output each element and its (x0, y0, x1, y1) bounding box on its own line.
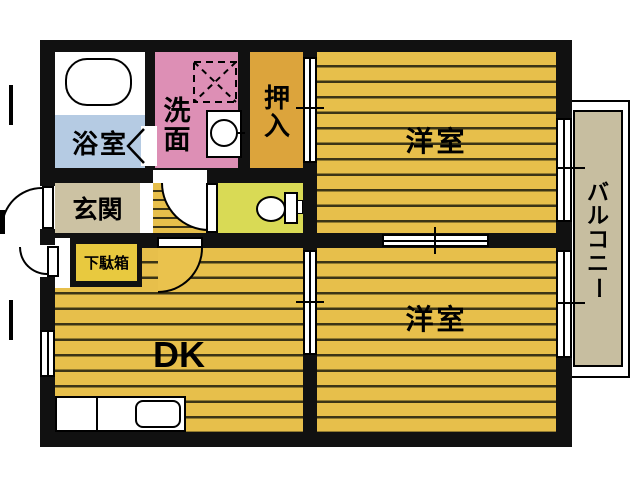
entry-door-top-swing (1, 187, 42, 228)
washroom-label: 洗面 (158, 80, 196, 172)
balcony-label: バルコニー (573, 115, 623, 365)
bathtub-icon (65, 58, 132, 106)
wall-top (40, 40, 572, 52)
laundry-space-icon (192, 60, 238, 104)
left-exterior-mark (9, 85, 13, 125)
shoe-cabinet-label: 下駄箱 (76, 244, 137, 281)
entry-door-bottom-leaf (47, 246, 59, 277)
entry-door-top-leaf (42, 186, 54, 229)
sliding-door-closet (303, 57, 317, 163)
left-exterior-mark (9, 300, 13, 340)
dk-label: DK (55, 305, 303, 405)
entry-door-bottom-swing (19, 247, 47, 275)
toilet-tank-icon (284, 192, 298, 224)
bath-label: 浴室 (55, 115, 145, 170)
bedroom-top-label: 洋室 (317, 60, 556, 220)
toilet-door-leaf (206, 183, 218, 233)
floorplan: 浴室 洗面 押入 洋室 洋室 玄関 下駄箱 DK バルコニー (0, 0, 640, 480)
window-dk-left (40, 330, 55, 377)
toilet-bowl-icon (256, 196, 286, 222)
left-exterior-mark (0, 210, 5, 234)
window-bedroom-top-balcony (556, 118, 572, 222)
washer-drum-icon (210, 119, 238, 147)
closet-label: 押入 (261, 68, 293, 156)
bedroom-bottom-label: 洋室 (317, 252, 556, 384)
wall-bottom (40, 432, 572, 447)
window-bedroom-bottom-balcony (556, 250, 572, 358)
washer-handle (236, 132, 245, 134)
toilet-button (297, 200, 303, 214)
entrance-label: 玄関 (55, 183, 140, 233)
entrance-step-gap (140, 183, 153, 233)
window-tick (434, 227, 436, 254)
dk-door-leaf (157, 237, 203, 248)
